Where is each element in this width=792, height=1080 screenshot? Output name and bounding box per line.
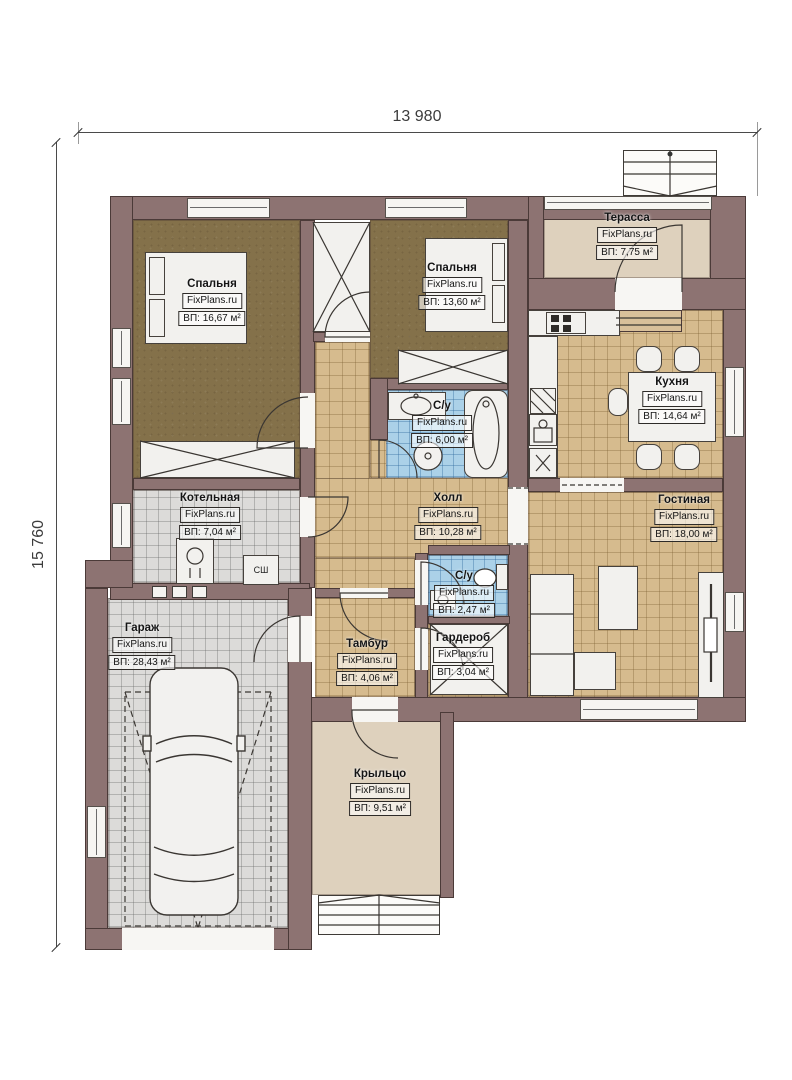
room-area: ВП: 13,60 м² (418, 295, 485, 311)
chair (608, 388, 628, 416)
room-area: ВП: 9,51 м² (349, 801, 411, 817)
wall-garage-step (85, 560, 133, 588)
door-gap-porch (352, 697, 398, 722)
door-gap-terrace (615, 278, 682, 310)
window-boiler-left (112, 503, 131, 548)
watermark: FixPlans.ru (642, 391, 702, 407)
room-name: Гардероб (436, 632, 490, 645)
watermark: FixPlans.ru (337, 653, 397, 669)
room-name: Тамбур (346, 638, 388, 651)
watermark: FixPlans.ru (350, 783, 410, 799)
label-bathroom: С/у FixPlans.ru ВП: 6,00 м² (411, 400, 473, 448)
wall-kitchen-living (528, 478, 723, 492)
label-living: Гостиная FixPlans.ru ВП: 18,00 м² (650, 494, 717, 542)
window-garage-left (87, 806, 106, 858)
room-name: Спальня (427, 262, 477, 275)
sofa (530, 574, 574, 696)
window-bedroom1-left-b (112, 378, 131, 425)
room-name: Кухня (655, 376, 689, 389)
tv-stand (698, 572, 724, 698)
pillow (492, 243, 505, 281)
garage-door-opening (122, 928, 274, 950)
label-terrace: Терасса FixPlans.ru ВП: 7,75 м² (596, 212, 658, 260)
door-gap-bedroom1 (300, 393, 315, 448)
label-bedroom2: Спальня FixPlans.ru ВП: 13,60 м² (418, 262, 485, 310)
kitchen-cabinet (529, 448, 557, 478)
kitchen-sink (529, 414, 557, 446)
room-name: Холл (434, 492, 463, 505)
room-area: ВП: 6,00 м² (411, 433, 473, 449)
window-living-bottom (580, 699, 698, 720)
watermark: FixPlans.ru (112, 637, 172, 653)
passage-hall-living (508, 487, 528, 545)
terrace-stairs (623, 150, 717, 196)
dryer-cabinet-label: СШ (254, 565, 269, 575)
door-gap-vestibule (340, 588, 388, 598)
room-name: Спальня (187, 278, 237, 291)
watermark: FixPlans.ru (597, 227, 657, 243)
door-gap-garage (288, 616, 312, 662)
chair (636, 444, 662, 470)
wall-bathroom-left (370, 378, 388, 440)
passage-kitchen-living (560, 478, 624, 492)
width-dimension: 13 980 (393, 108, 442, 126)
watermark: FixPlans.ru (433, 647, 493, 663)
toilet-tank (496, 564, 508, 590)
terrace-railing (544, 196, 712, 210)
terrace-door-steps (616, 310, 682, 332)
watermark: FixPlans.ru (180, 507, 240, 523)
label-kitchen: Кухня FixPlans.ru ВП: 14,64 м² (638, 376, 705, 424)
closet-niche (313, 222, 370, 332)
room-name: Крыльцо (354, 768, 406, 781)
height-dimension: 15 760 (30, 520, 48, 569)
wall-wc-top (428, 545, 510, 555)
watermark: FixPlans.ru (412, 415, 472, 431)
label-bedroom1: Спальня FixPlans.ru ВП: 16,67 м² (178, 278, 245, 326)
pillow (149, 299, 165, 337)
room-area: ВП: 7,04 м² (179, 525, 241, 541)
window-bedroom1-top (187, 198, 270, 218)
door-gap-wc (415, 560, 428, 605)
label-wardrobe: Гардероб FixPlans.ru ВП: 3,04 м² (432, 632, 494, 680)
pillow (149, 257, 165, 295)
window-living-right (725, 592, 744, 632)
label-garage: Гараж FixPlans.ru ВП: 28,43 м² (108, 622, 175, 670)
door-gap-boiler (300, 497, 315, 537)
room-area: ВП: 14,64 м² (638, 409, 705, 425)
window-kitchen-right (725, 367, 744, 437)
window-bedroom2-top (385, 198, 467, 218)
room-area: ВП: 4,06 м² (336, 671, 398, 687)
wall-garage-left (85, 588, 108, 950)
boiler-unit (176, 538, 214, 584)
watermark: FixPlans.ru (418, 507, 478, 523)
label-wc: С/у FixPlans.ru ВП: 2,47 м² (433, 570, 495, 618)
chair (674, 444, 700, 470)
label-vestibule: Тамбур FixPlans.ru ВП: 4,06 м² (336, 638, 398, 686)
door-gap-bedroom2 (325, 332, 370, 342)
wall-bedroom1-bottom (133, 478, 300, 490)
watermark: FixPlans.ru (654, 509, 714, 525)
dim-extension (757, 122, 758, 196)
watermark: FixPlans.ru (182, 293, 242, 309)
chimney-flue (152, 586, 167, 598)
chair (636, 346, 662, 372)
room-area: ВП: 7,75 м² (596, 245, 658, 261)
label-porch: Крыльцо FixPlans.ru ВП: 9,51 м² (349, 768, 411, 816)
porch-steps (318, 895, 440, 935)
wall-boiler-bottom (110, 583, 310, 600)
room-area: ВП: 16,67 м² (178, 311, 245, 327)
stove (546, 312, 586, 334)
room-area: ВП: 28,43 м² (108, 655, 175, 671)
room-area: ВП: 3,04 м² (432, 665, 494, 681)
top-dimension-line (78, 132, 757, 133)
left-dimension-line (56, 142, 57, 947)
coffee-table (598, 566, 638, 630)
chimney-flue (192, 586, 207, 598)
pillow (492, 285, 505, 323)
sofa-chaise (574, 652, 616, 690)
wall-porch-right (440, 712, 454, 898)
window-bedroom1-left-a (112, 328, 131, 368)
wardrobe-bedroom2 (398, 350, 508, 384)
room-name: Котельная (180, 492, 240, 505)
room-name: Гостиная (658, 494, 710, 507)
fridge (530, 388, 556, 414)
room-name: Гараж (125, 622, 159, 635)
chimney-flue (172, 586, 187, 598)
dryer-cabinet: СШ (243, 555, 279, 585)
label-boiler: Котельная FixPlans.ru ВП: 7,04 м² (179, 492, 241, 540)
label-hall: Холл FixPlans.ru ВП: 10,28 м² (414, 492, 481, 540)
room-name: С/у (455, 570, 473, 583)
room-name: С/у (433, 400, 451, 413)
watermark: FixPlans.ru (434, 585, 494, 601)
chair (674, 346, 700, 372)
floor-plan: 13 980 15 760 (0, 0, 792, 1080)
watermark: FixPlans.ru (422, 277, 482, 293)
wardrobe-bedroom1 (140, 441, 295, 478)
room-name: Терасса (604, 212, 650, 225)
wall-center-vertical (508, 220, 528, 722)
door-gap-wardrobe (415, 628, 428, 670)
room-area: ВП: 2,47 м² (433, 603, 495, 619)
room-area: ВП: 10,28 м² (414, 525, 481, 541)
room-area: ВП: 18,00 м² (650, 527, 717, 543)
